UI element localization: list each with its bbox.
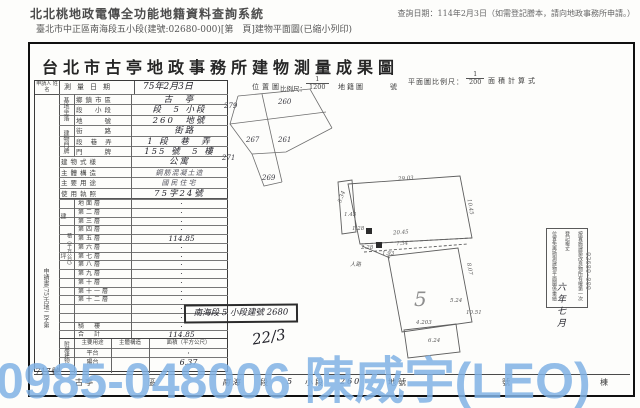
field-label: 主體構造 [59, 168, 131, 177]
field-label: 主要用途 [59, 178, 131, 187]
dimension-label: 2.28 [361, 245, 373, 251]
form-top-section: 基地坐落 建物門牌 鄉鎮市區古 亭 段 小段段 5 小段 地 號260 地號 街… [59, 94, 228, 198]
field-label: 使用執照 [59, 189, 131, 198]
system-title: 北北桃地政電傳全功能地籍資料查詢系統 [30, 5, 264, 22]
fraction-denominator: 200 [466, 78, 484, 86]
dimension-label: 7.34 [396, 241, 409, 248]
plot-number: 267 [245, 136, 260, 144]
dimension-label: 1.28 [352, 226, 364, 232]
divider [74, 94, 75, 156]
document-title: 台北市古亭地政事務所建物測量成果圖 [42, 54, 399, 78]
watermark: 0985-048006 陳威宇(LEO) [0, 341, 591, 408]
certification-stamp: 按實施建築改良物所有權第一次登記複丈 位置免再勘測建物平面圖係重繪比照建物 併檢… [546, 228, 588, 308]
stamp-handwritten-date: 六年七月 [554, 282, 567, 330]
field-label: 段 小段 [74, 105, 131, 114]
section-number-box: 南海段 5 小段建號 2680 [184, 304, 298, 324]
form-header-strip: 申請人 姓名 測量日期 75年2月3日 [35, 81, 227, 95]
document-subtitle: 臺北市中正區南海段五小段(建號:02680-000)[第 頁]建物平面圖(已縮小… [36, 22, 352, 35]
divider [131, 199, 132, 339]
floor-label: 地面層 [74, 200, 135, 208]
dimension-label: 1.93 [382, 251, 394, 257]
floor-row: 第十層 · [59, 278, 228, 287]
field-value: 公寓 [131, 157, 228, 166]
field-label: 門 牌 [74, 147, 131, 156]
fraction-numerator: 1 [473, 71, 477, 78]
plot-number: 261 [277, 136, 291, 144]
floor-value: · [135, 296, 228, 304]
floor-label: 第三層 [74, 218, 135, 226]
floor-value: · [135, 261, 228, 269]
plot-number: 269 [261, 174, 276, 182]
floor-label: 第四層 [74, 226, 135, 234]
plot-number: 260 [277, 98, 292, 106]
floor-value: · [135, 270, 228, 278]
floor-value: · [135, 323, 228, 331]
floor-label: 第七層 [74, 253, 135, 261]
survey-date-value: 75年2月3日 [135, 81, 227, 94]
applicant-label: 申請人 姓名 [35, 81, 60, 94]
area-calc-label: 面積計算式 [488, 76, 538, 86]
dimension-label: 10.51 [466, 310, 482, 316]
field-value: 260 地號 [131, 116, 228, 125]
dimension-label: 29.03 [398, 175, 414, 182]
floor-row: 第四層 · [59, 225, 228, 234]
floor-row: 第十二層 · [59, 295, 228, 304]
field-value: 155 號 5 樓 [131, 147, 228, 156]
floor-row: 第八層 · [59, 260, 228, 269]
field-label: 建物式樣 [59, 157, 131, 166]
field-value: 古 亭 [131, 95, 228, 104]
dimension-label: 20.45 [393, 229, 409, 236]
floor-label: 第十二層 [74, 296, 135, 304]
divider [131, 94, 132, 198]
floor-value: · [135, 209, 228, 217]
field-label: 段 巷 弄 [74, 137, 131, 146]
field-label: 街 路 [74, 126, 131, 135]
query-date: 查詢日期：114年2月3日（如需登記謄本，請向地政事務所申請。） [398, 8, 635, 19]
form-body: 基地坐落 建物門牌 鄉鎮市區古 亭 段 小段段 5 小段 地 號260 地號 街… [59, 94, 228, 372]
floor-row: 第十一層 · [59, 287, 228, 296]
dimension-label: 4.203 [416, 320, 432, 326]
floor-row: 第九層 · [59, 269, 228, 278]
floor-label: 第六層 [74, 244, 135, 252]
address-group-label: 建物門牌 [61, 130, 70, 154]
floor-value: · [135, 288, 228, 296]
floor-label: 第九層 [74, 270, 135, 278]
scanned-document-page: 北北桃地政電傳全功能地籍資料查詢系統 查詢日期：114年2月3日（如需登記謄本，… [0, 0, 640, 408]
floor-value: · [135, 226, 228, 234]
floor-plan-sketch: 5 [330, 172, 502, 367]
floor-label [74, 305, 135, 313]
survey-form: 申請人 姓名 測量日期 75年2月3日 申請書(75)古地二字第 717號 基地… [34, 80, 228, 372]
field-value: 鋼筋混凝土造 [131, 168, 228, 177]
building-number: 5 [414, 287, 427, 311]
survey-date-label: 測量日期 [60, 81, 135, 94]
plot-number: 279 [223, 102, 238, 110]
floor-label [74, 314, 135, 322]
floor-label: 騎 樓 [74, 323, 135, 331]
floor-value: · [135, 279, 228, 287]
field-label: 鄉鎮市區 [74, 95, 131, 104]
floor-value: · [135, 253, 228, 261]
floor-row: 第五層 114.85 [59, 234, 228, 243]
floor-label: 第五層 [74, 235, 135, 243]
floor-row: 第三層 · [59, 217, 228, 226]
plan-scale-fraction: 1 200 [466, 71, 484, 86]
floor-label: 第十一層 [74, 288, 135, 296]
site-group-label: 基地坐落 [61, 97, 70, 121]
floor-label: 第二層 [74, 209, 135, 217]
dimension-label: 5.24 [450, 298, 462, 304]
field-value: 75字24號 [131, 189, 228, 198]
path-label: 人路 [350, 260, 361, 268]
plot-number: 271 [222, 154, 235, 162]
field-value: 國民住宅 [131, 178, 228, 187]
floor-row: 第七層 · [59, 252, 228, 261]
footer-label: 棟 [600, 377, 610, 388]
floor-value: 114.85 [135, 235, 228, 243]
floor-area-unit-label: 積（平方公尺） [66, 233, 73, 268]
field-value: 段 5 小段 [131, 105, 228, 114]
floor-row: 第二層 · [59, 208, 228, 217]
divider [74, 199, 75, 339]
floor-label: 第十層 [74, 279, 135, 287]
field-value: 街路 [131, 126, 228, 135]
edge-building-number: 02680-000 [584, 252, 592, 290]
field-label: 地 號 [74, 116, 131, 125]
floor-value: · [135, 244, 228, 252]
dimension-label: 1.43 [344, 212, 356, 218]
floor-row: 第六層 · [59, 243, 228, 252]
field-value: 1 段 巷 弄 [131, 137, 228, 146]
floor-value: · [135, 200, 228, 208]
form-left-margin: 申請書(75)古地二字第 717號 [35, 94, 60, 372]
floor-row: 地面層 · [59, 199, 228, 208]
floor-value: · [135, 218, 228, 226]
floor-label: 第八層 [74, 261, 135, 269]
